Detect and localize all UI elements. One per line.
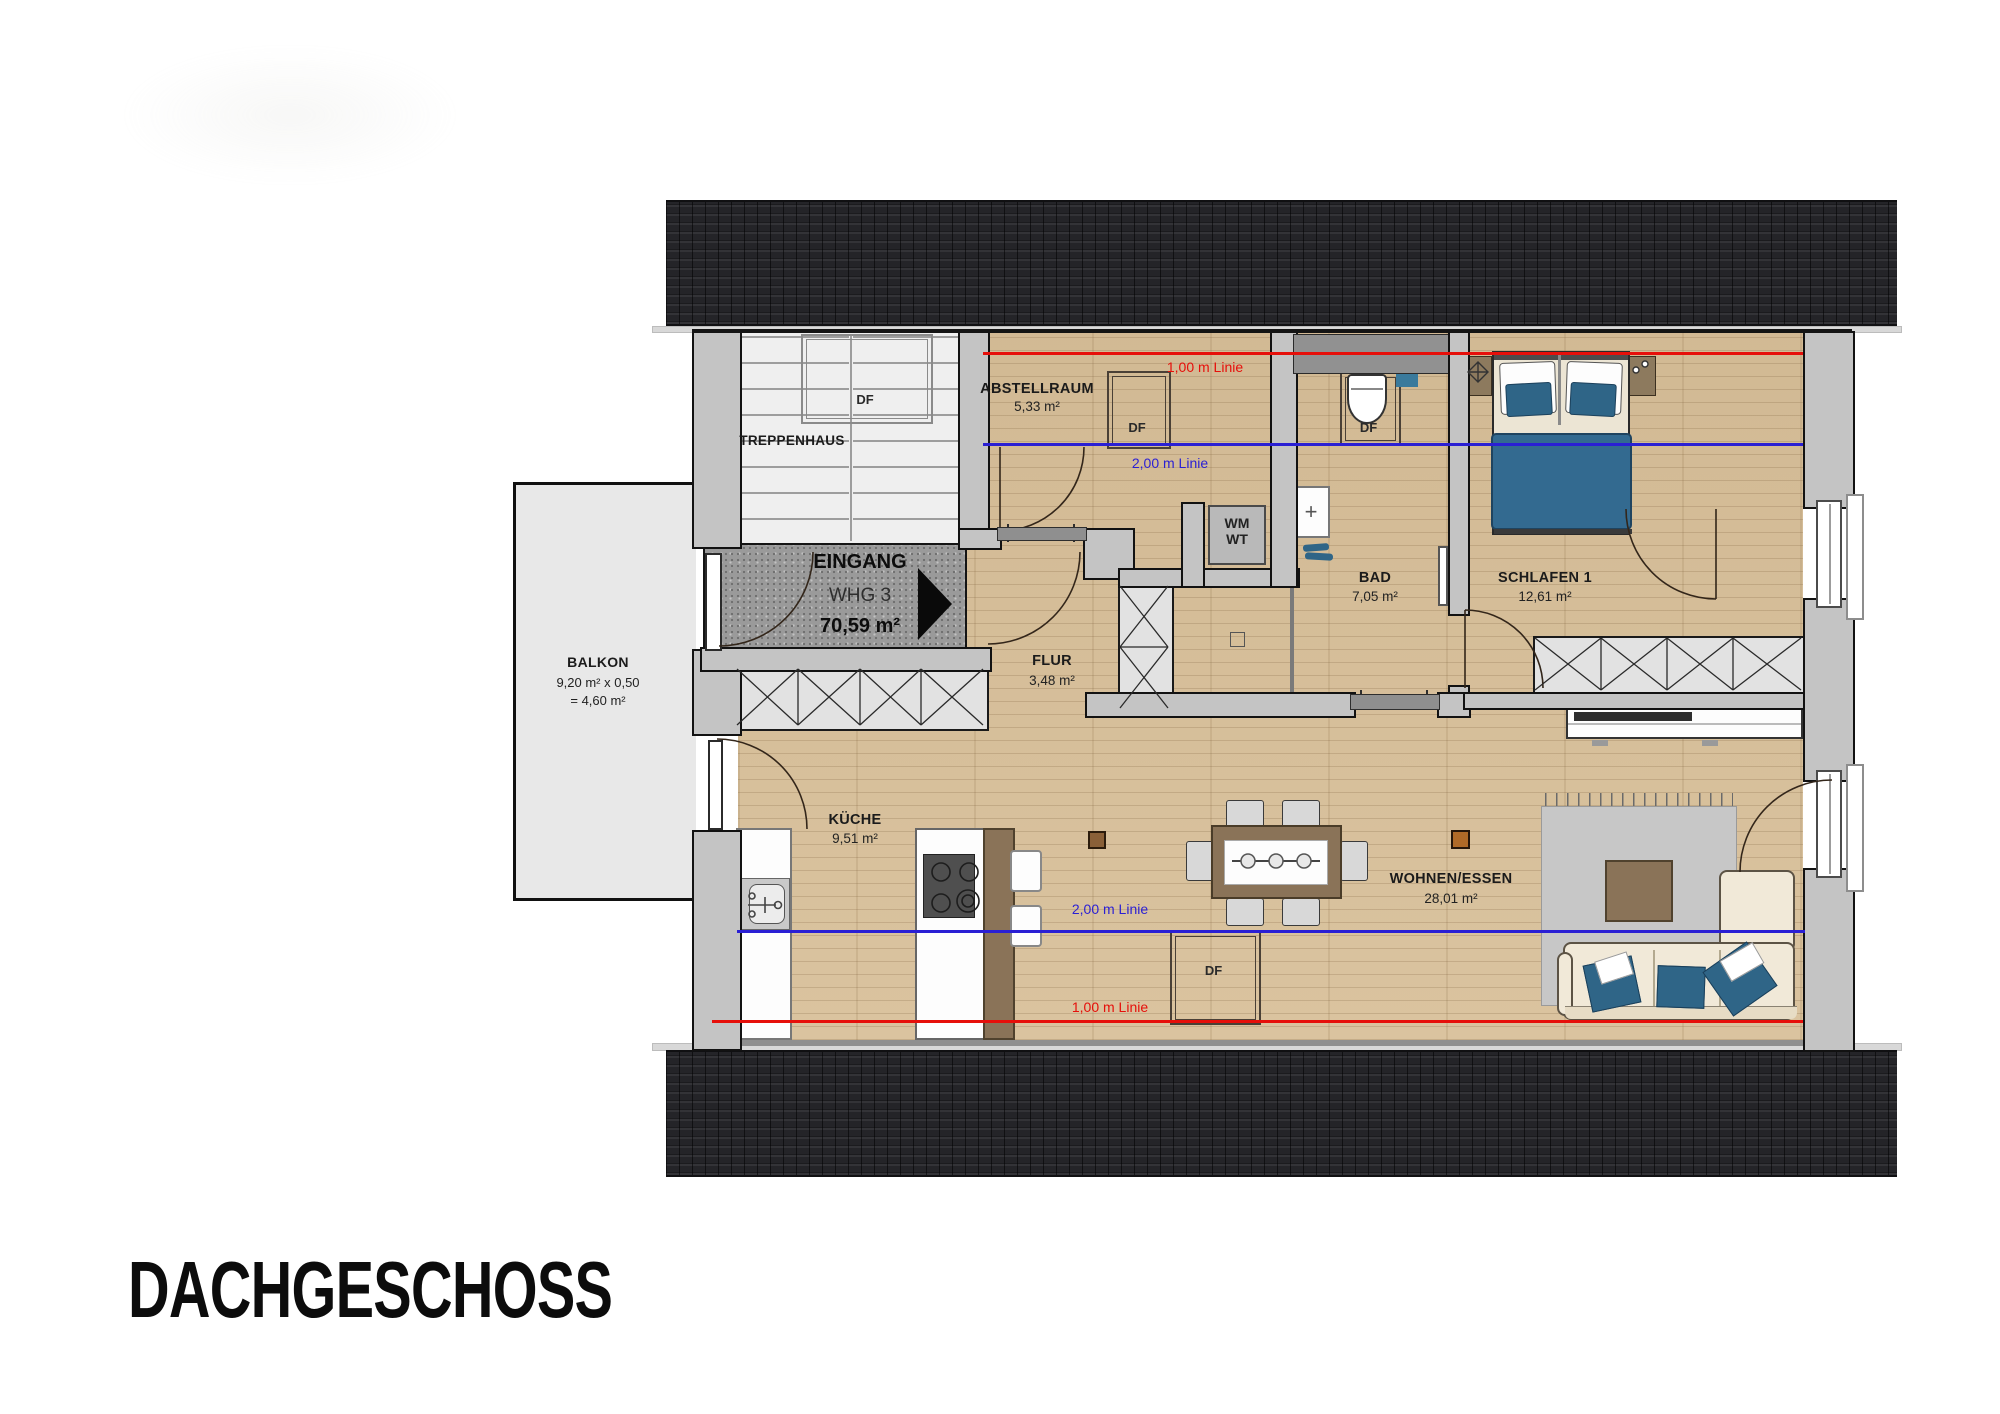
room-label-balkon: BALKON — [528, 654, 668, 670]
height-line-label-2m-bottom: 2,00 m Linie — [1050, 901, 1170, 917]
window-wohnen-east — [1816, 770, 1842, 878]
sofa-pillow — [1656, 965, 1705, 1009]
stool — [1010, 850, 1042, 892]
roof-window-label-wohnen: DF — [1170, 963, 1257, 978]
balcony-area — [513, 482, 696, 901]
entrance-door-leaf — [705, 553, 722, 651]
bad-slide-door — [1350, 694, 1440, 710]
cushion — [1569, 382, 1617, 417]
room-label-abstellraum: ABSTELLRAUM — [957, 381, 1117, 397]
balustrade-schlafen — [1846, 494, 1864, 620]
balustrade-wohnen — [1846, 764, 1864, 892]
wall-schlafen-south — [1463, 692, 1809, 710]
roof-window-label-abstellraum: DF — [1107, 420, 1167, 435]
wall-flur-bad-thin — [1290, 583, 1294, 693]
roof-window-label-bad: DF — [1340, 420, 1397, 435]
balcony-door-leaf — [708, 740, 723, 830]
wall-right-mid — [1803, 598, 1855, 782]
room-area-bad: 7,05 m² — [1315, 589, 1435, 604]
room-label-wohnen-essen: WOHNEN/ESSEN — [1371, 871, 1531, 887]
room-label-schlafen1: SCHLAFEN 1 — [1485, 570, 1605, 586]
wall-right-upper — [1803, 331, 1855, 509]
exterior-wall-north — [692, 329, 1852, 333]
dryer-label: WT — [1210, 531, 1264, 547]
dining-chair — [1282, 800, 1320, 828]
rug-fringe — [1545, 793, 1733, 806]
cooktop-icon — [923, 854, 975, 918]
wall-bad-east-upper — [1448, 331, 1470, 616]
height-line-label-1m-top: 1,00 m Linie — [1145, 359, 1265, 375]
room-area-wohnen-essen: 28,01 m² — [1371, 891, 1531, 906]
dining-chair — [1226, 898, 1264, 926]
radiator-icon — [1438, 546, 1448, 606]
room-label-bad: BAD — [1315, 570, 1435, 586]
sofa-chaise — [1719, 870, 1795, 952]
washer-dryer-box: WM WT — [1208, 505, 1266, 565]
hall-closet — [735, 667, 989, 731]
floor-edge-south — [692, 1040, 1852, 1046]
wall-south-corridor — [1085, 692, 1356, 718]
height-line-1m-bottom — [712, 1020, 1803, 1023]
duvet — [1491, 433, 1632, 530]
height-line-2m-bottom — [737, 930, 1805, 933]
schlafen-wardrobe — [1533, 636, 1807, 696]
wall-left-lower — [692, 830, 742, 1051]
dining-chair — [1340, 841, 1368, 881]
floorplan-canvas: DF TREPPENHAUS EINGANG WHG 3 70,59 m² DF… — [0, 0, 2000, 1414]
cushion — [1505, 382, 1553, 417]
roof-band-bottom — [666, 1050, 1897, 1177]
room-calc-balkon: 9,20 m² x 0,50 — [528, 675, 668, 690]
window-schlafen-east — [1816, 500, 1842, 608]
dining-chair — [1282, 898, 1320, 926]
roof-window-wohnen — [1170, 931, 1261, 1025]
wall-niche-left — [1181, 502, 1205, 588]
kitchen-counter — [736, 828, 792, 1040]
entrance-arrow-icon — [918, 568, 952, 640]
wall-stairwell-right — [958, 331, 990, 549]
sofa-main — [1563, 942, 1795, 1020]
dining-chair — [1186, 841, 1214, 881]
toilet-icon — [1347, 374, 1387, 424]
pillar-outline — [1230, 632, 1245, 647]
room-label-flur: FLUR — [992, 653, 1112, 669]
tv-icon — [1574, 712, 1692, 721]
room-area-flur: 3,48 m² — [992, 673, 1112, 688]
page-title: DACHGESCHOSS — [128, 1250, 612, 1330]
tv-lowboard — [1566, 706, 1803, 739]
room-area-abstellraum: 5,33 m² — [957, 399, 1117, 414]
height-line-label-1m-bottom: 1,00 m Linie — [1050, 999, 1170, 1015]
kitchen-sink-icon — [740, 878, 790, 930]
height-line-label-2m-top: 2,00 m Linie — [1110, 455, 1230, 471]
roof-window-stairwell — [801, 334, 933, 424]
room-label-treppenhaus: TREPPENHAUS — [712, 433, 872, 448]
washing-machine-label: WM — [1210, 515, 1264, 531]
vent-icon — [1396, 373, 1418, 387]
stool — [1010, 905, 1042, 947]
dining-table — [1211, 825, 1342, 899]
table-runner — [1224, 840, 1328, 885]
wall-under-entrance — [700, 647, 992, 672]
slipper-icon — [1305, 552, 1333, 560]
pillar — [1088, 831, 1106, 849]
height-line-1m-top — [983, 352, 1803, 355]
room-total-balkon: = 4,60 m² — [528, 693, 668, 708]
height-line-2m-top — [983, 443, 1803, 446]
roof-window-label-stairwell: DF — [801, 392, 929, 407]
faded-watermark — [120, 45, 460, 185]
room-area-schlafen1: 12,61 m² — [1485, 589, 1605, 604]
wall-right-lower — [1803, 868, 1855, 1052]
room-label-kueche: KÜCHE — [795, 812, 915, 828]
abstellraum-slide-door — [997, 527, 1087, 541]
nightstand-right — [1628, 356, 1656, 396]
wall-abstellraum-south-a — [958, 528, 1002, 550]
coffee-table — [1605, 860, 1673, 922]
room-area-kueche: 9,51 m² — [795, 831, 915, 846]
pillar — [1451, 830, 1470, 849]
dining-chair — [1226, 800, 1264, 828]
roof-band-top — [666, 200, 1897, 326]
